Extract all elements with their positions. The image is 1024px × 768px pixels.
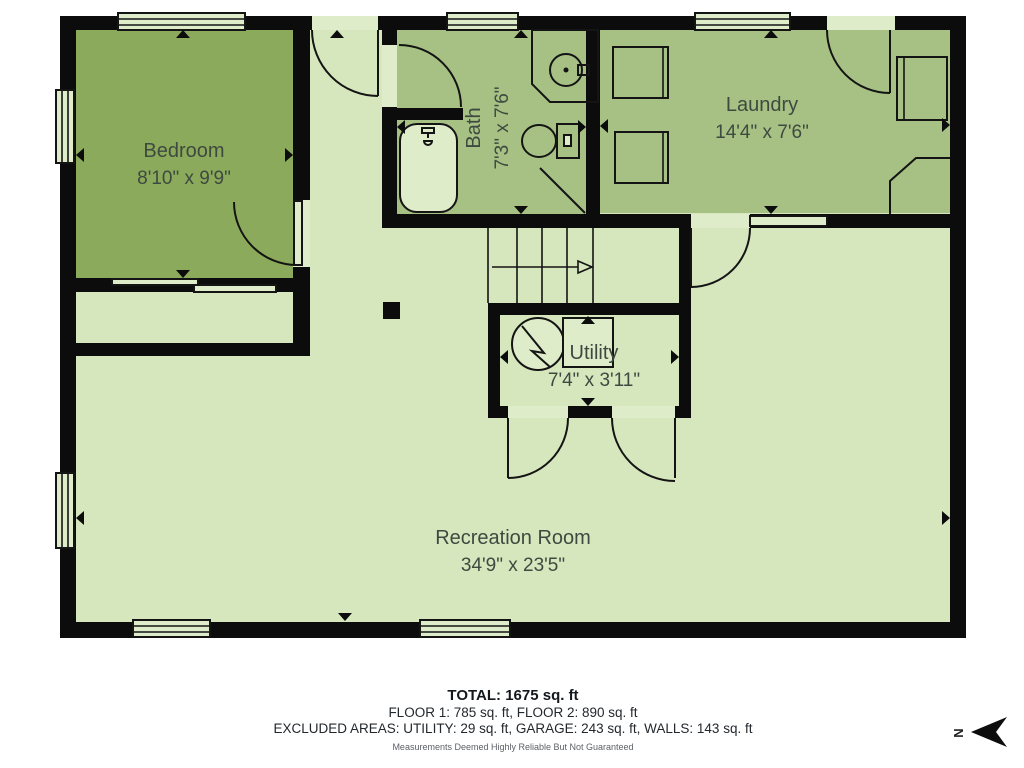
laundry-top-door-opening	[827, 16, 895, 30]
bedroom-left-window	[56, 90, 74, 163]
landing-right-wall	[679, 228, 691, 303]
sink-drain	[564, 68, 569, 73]
closet-slider-panel-right	[194, 285, 276, 292]
footer-disclaimer: Measurements Deemed Highly Reliable But …	[392, 742, 633, 752]
water-heater	[512, 318, 564, 370]
bedroom-right-wall	[293, 16, 310, 356]
bath-label: Bath	[463, 107, 485, 148]
bedroom-door-leaf	[294, 201, 302, 265]
bath-top-window	[447, 13, 518, 30]
bedroom-label: Bedroom	[143, 140, 224, 162]
recreation-dims: 34'9" x 23'5"	[461, 555, 565, 576]
laundry-cased-opening	[750, 216, 827, 226]
utility-right-door-opening	[612, 406, 675, 418]
closet-bottom-wall	[60, 343, 310, 356]
recreation-bottom-window-2	[420, 620, 510, 637]
tub-alcove-wall	[397, 108, 463, 120]
laundry-label: Laundry	[726, 94, 798, 116]
laundry-dims: 14'4" x 7'6"	[715, 122, 809, 143]
closet-slider-panel-left	[112, 279, 198, 285]
dryer	[615, 132, 668, 183]
utility-dims: 7'4" x 3'11"	[548, 370, 640, 391]
footer-floors: FLOOR 1: 785 sq. ft, FLOOR 2: 890 sq. ft	[388, 705, 637, 720]
bedroom-top-window	[118, 13, 245, 30]
footer-total: TOTAL: 1675 sq. ft	[447, 687, 578, 704]
compass: N	[951, 717, 1007, 747]
structural-post	[383, 302, 400, 319]
south-wall-bath-laundry	[382, 214, 966, 228]
bath-dims: 7'3" x 7'6"	[492, 86, 513, 169]
utility-top-wall	[488, 303, 691, 315]
footer-excluded: EXCLUDED AREAS: UTILITY: 29 sq. ft, GARA…	[274, 721, 753, 736]
laundry-top-window	[695, 13, 790, 30]
utility-left-wall	[488, 303, 500, 418]
bedroom-dims: 8'10" x 9'9"	[137, 168, 231, 189]
utility-label: Utility	[570, 342, 619, 364]
north-arrow-icon	[971, 717, 1007, 747]
hall-top-door-opening	[312, 16, 378, 30]
utility-left-door-opening	[508, 406, 568, 418]
recreation-left-window	[56, 473, 74, 548]
washer	[613, 47, 668, 98]
recreation-label: Recreation Room	[435, 527, 591, 549]
floor-plan-page: Bedroom 8'10" x 9'9" Bath 7'3" x 7'6" La…	[0, 0, 1024, 768]
north-letter: N	[951, 728, 966, 737]
utility-right-wall	[679, 303, 691, 418]
floor-plan-drawing: Bedroom 8'10" x 9'9" Bath 7'3" x 7'6" La…	[0, 0, 1024, 768]
toilet-flush-button	[564, 135, 571, 146]
laundry-bottom-door-opening	[691, 214, 750, 228]
recreation-bottom-window-1	[133, 620, 210, 637]
toilet-bowl	[522, 125, 556, 157]
bath-door-opening	[382, 45, 397, 107]
